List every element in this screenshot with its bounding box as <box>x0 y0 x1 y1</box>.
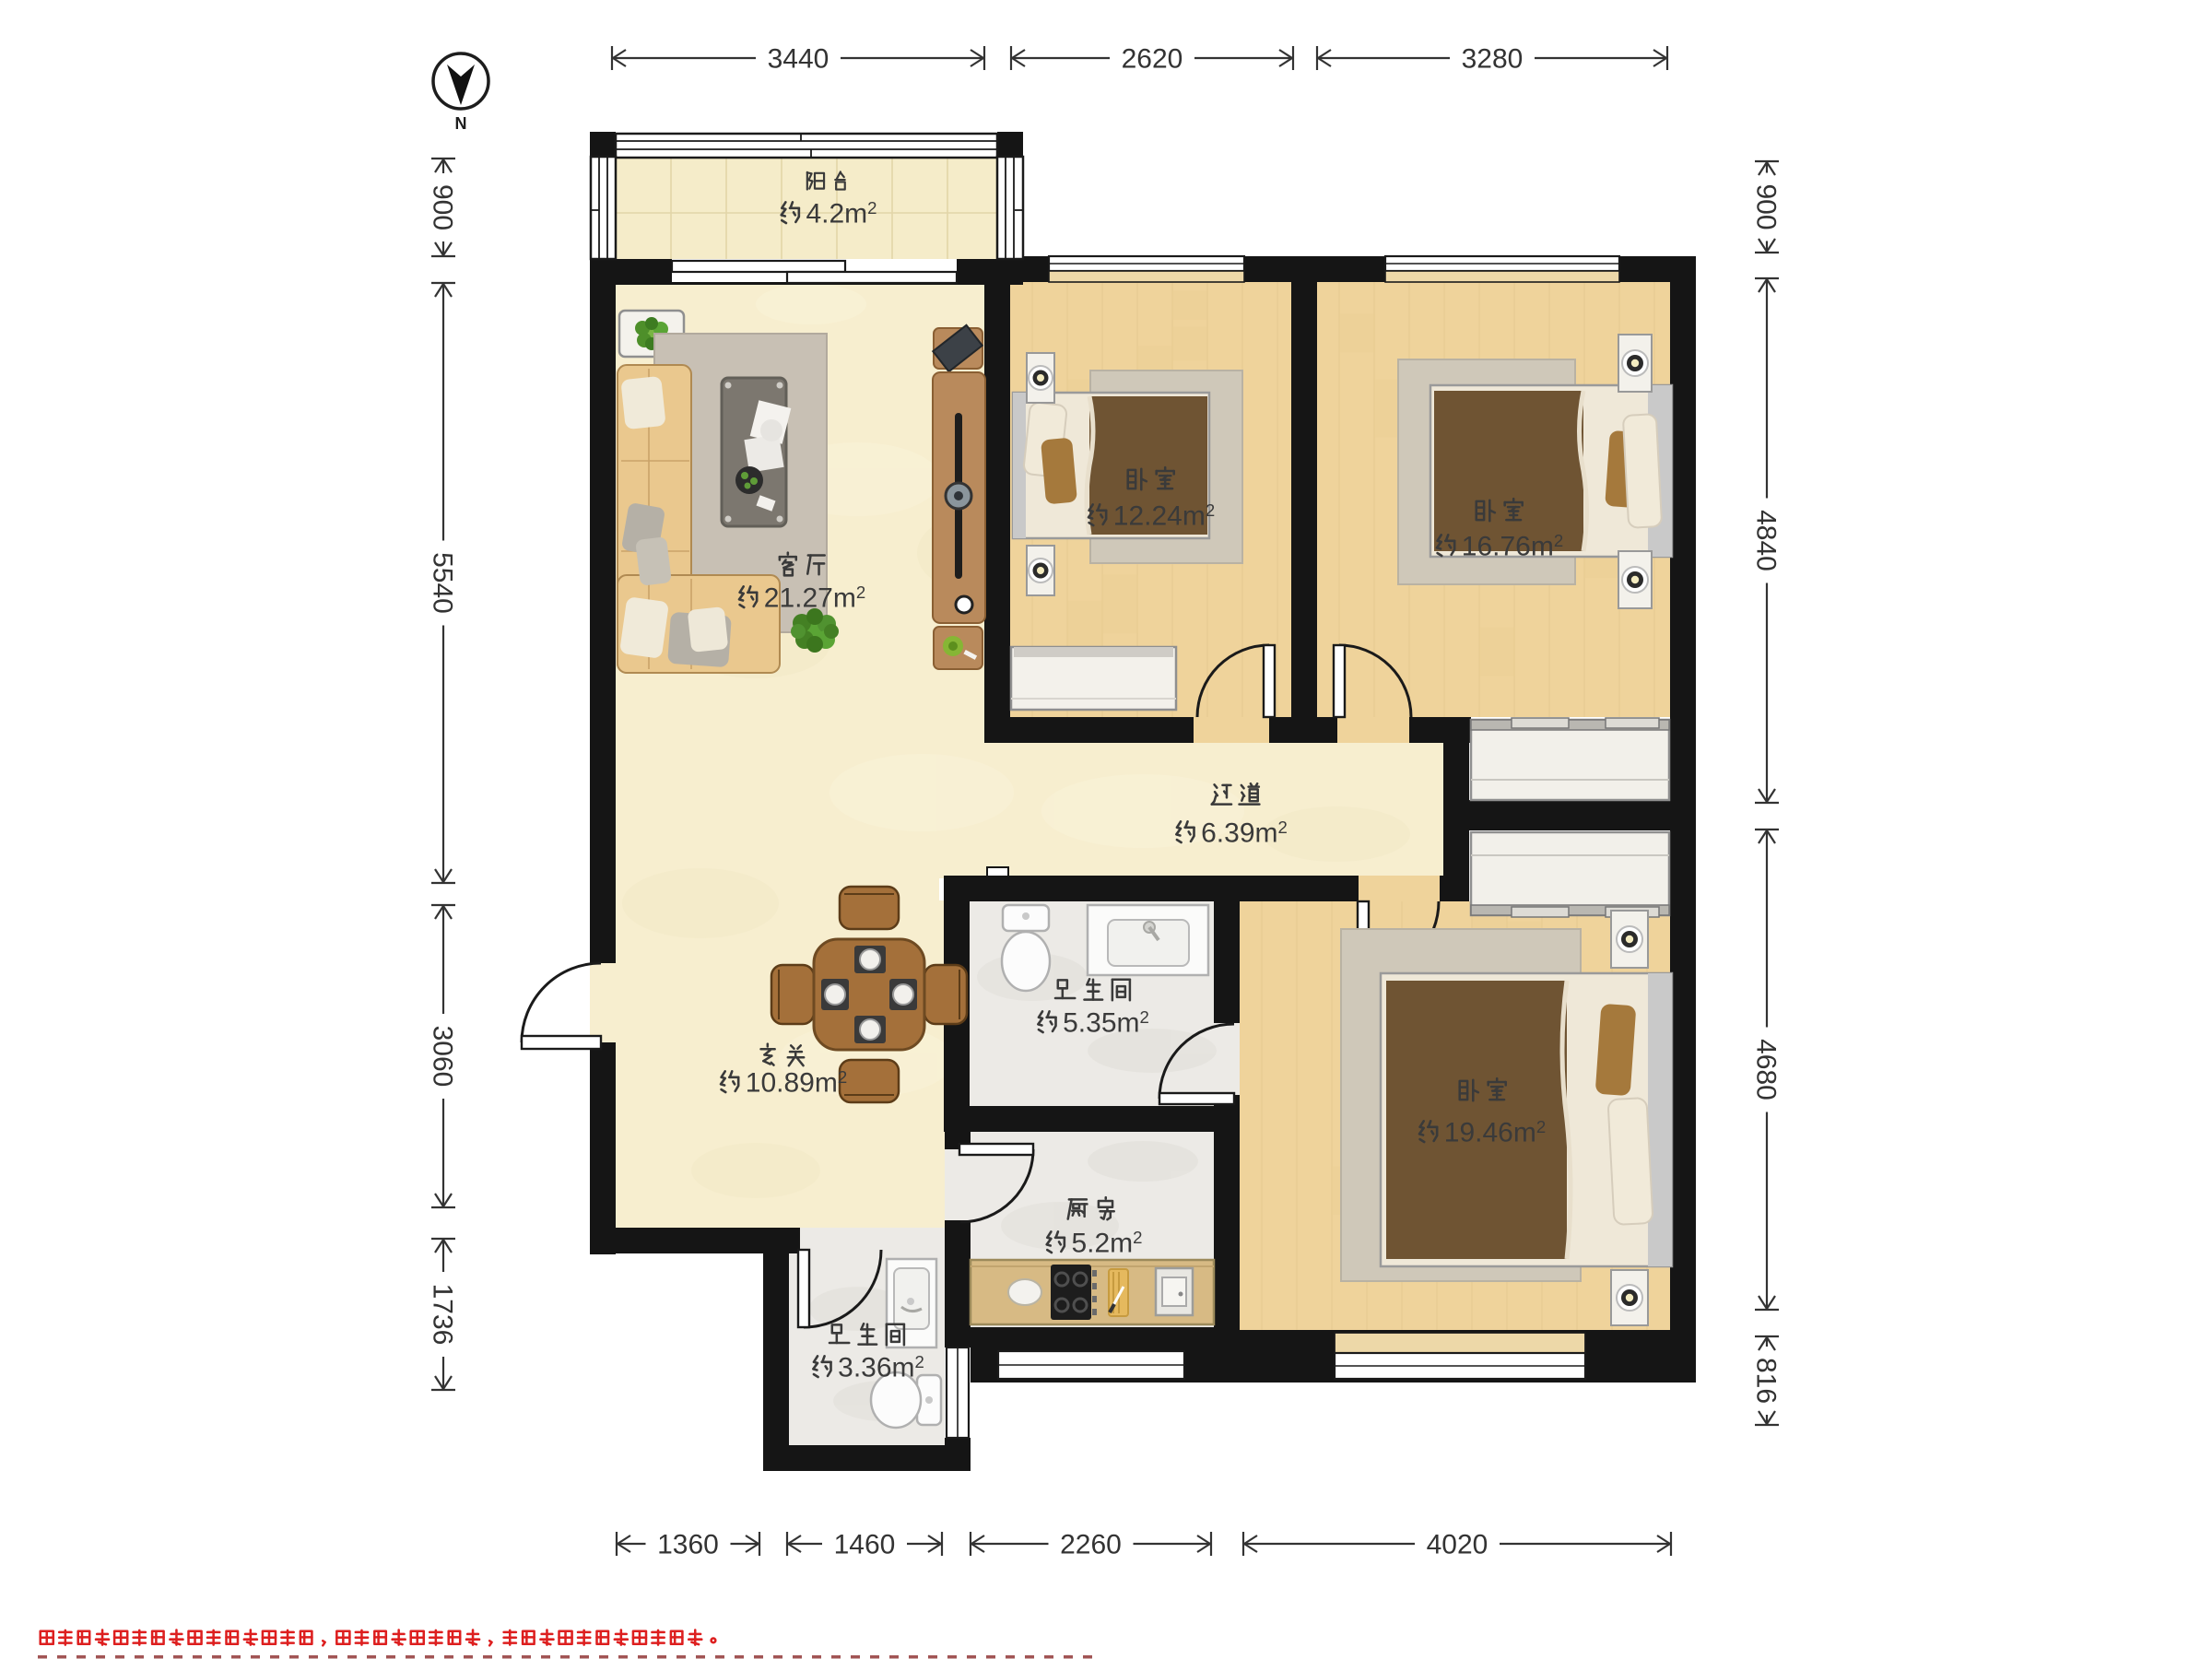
svg-text:N: N <box>455 114 467 133</box>
svg-text:3440: 3440 <box>768 44 829 75</box>
svg-text:900: 900 <box>1751 183 1782 229</box>
svg-text:3.36m2: 3.36m2 <box>838 1352 924 1383</box>
svg-text:2620: 2620 <box>1122 44 1183 75</box>
svg-text:4020: 4020 <box>1427 1530 1488 1560</box>
svg-text:4.2m2: 4.2m2 <box>806 198 877 229</box>
svg-text:4840: 4840 <box>1751 510 1782 571</box>
svg-text:19.46m2: 19.46m2 <box>1444 1117 1546 1148</box>
svg-text:16.76m2: 16.76m2 <box>1462 531 1563 562</box>
svg-text:4680: 4680 <box>1751 1039 1782 1100</box>
svg-text:816: 816 <box>1751 1358 1782 1404</box>
svg-text:21.27m2: 21.27m2 <box>764 582 865 614</box>
svg-text:5.2m2: 5.2m2 <box>1071 1228 1142 1259</box>
svg-text:1736: 1736 <box>428 1284 458 1346</box>
svg-text:5.35m2: 5.35m2 <box>1063 1007 1149 1039</box>
svg-text:12.24m2: 12.24m2 <box>1113 500 1215 532</box>
svg-text:6.39m2: 6.39m2 <box>1201 818 1288 849</box>
svg-text:900: 900 <box>428 184 458 230</box>
svg-text:10.89m2: 10.89m2 <box>746 1067 847 1099</box>
svg-text:3060: 3060 <box>428 1026 458 1088</box>
svg-text:3280: 3280 <box>1462 44 1524 75</box>
svg-text:2260: 2260 <box>1060 1530 1122 1560</box>
svg-text:5540: 5540 <box>428 552 458 614</box>
svg-text:1360: 1360 <box>657 1530 719 1560</box>
svg-text:1460: 1460 <box>834 1530 896 1560</box>
